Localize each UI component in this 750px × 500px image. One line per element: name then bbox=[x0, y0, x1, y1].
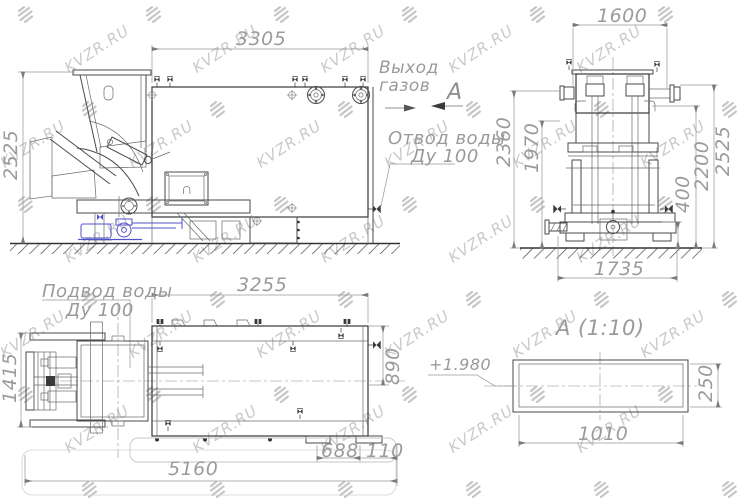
dim-front-2360: 2360 bbox=[493, 121, 515, 167]
dim-front-width: 1600 bbox=[597, 5, 647, 27]
dim-front-2525: 2525 bbox=[712, 130, 734, 176]
label-water-inlet-line1: Подвод воды bbox=[42, 281, 173, 302]
water-outlet-leader bbox=[381, 164, 455, 206]
dim-plan-688: 688 bbox=[321, 440, 359, 462]
pusher-frame bbox=[26, 322, 105, 433]
fuel-hopper bbox=[73, 70, 151, 152]
elevation-leader bbox=[428, 375, 513, 386]
boiler-body bbox=[152, 87, 373, 244]
side-ports bbox=[560, 85, 680, 102]
dim-detail-width: 1010 bbox=[578, 423, 628, 445]
label-gas-exit-line2: газов bbox=[379, 76, 430, 96]
dim-detail-height: 250 bbox=[695, 368, 717, 402]
dim-front-1970: 1970 bbox=[521, 127, 543, 173]
dim-front-2200: 2200 bbox=[691, 145, 713, 191]
label-detail-title: А (1:10) bbox=[556, 316, 645, 340]
dim-plan-length: 3255 bbox=[237, 274, 287, 296]
dim-side-height: 2525 bbox=[0, 134, 22, 180]
stoker-feeder bbox=[30, 121, 250, 243]
dim-plan-110: 110 bbox=[366, 440, 404, 462]
pump-unit bbox=[78, 214, 182, 240]
dim-plan-total: 5160 bbox=[168, 458, 218, 480]
top-flange-ports bbox=[308, 87, 370, 104]
front-pump bbox=[600, 210, 627, 240]
label-elevation-mark: +1.980 bbox=[429, 355, 491, 374]
dim-plan-width-right: 890 bbox=[382, 351, 404, 385]
dim-side-length: 3305 bbox=[236, 28, 286, 50]
dim-front-base: 1735 bbox=[594, 258, 644, 280]
top-valves bbox=[154, 77, 366, 88]
label-gas-exit-line1: Выход bbox=[379, 58, 439, 78]
drawing-sheet: KVZR.RUKVZR.RUKVZR.RUKVZR.RUKVZR.RUKVZR.… bbox=[0, 0, 750, 500]
technical-drawing bbox=[0, 0, 750, 500]
water-outlet-valve bbox=[368, 205, 381, 213]
label-view-arrow: А bbox=[447, 80, 463, 105]
dim-plan-width-left: 1415 bbox=[0, 357, 21, 403]
ground-hatch bbox=[10, 244, 400, 254]
label-water-inlet-line2: Ду 100 bbox=[66, 300, 134, 321]
gas-flow-arrow bbox=[385, 105, 416, 112]
label-water-outlet-line2: Ду 100 bbox=[411, 146, 479, 167]
